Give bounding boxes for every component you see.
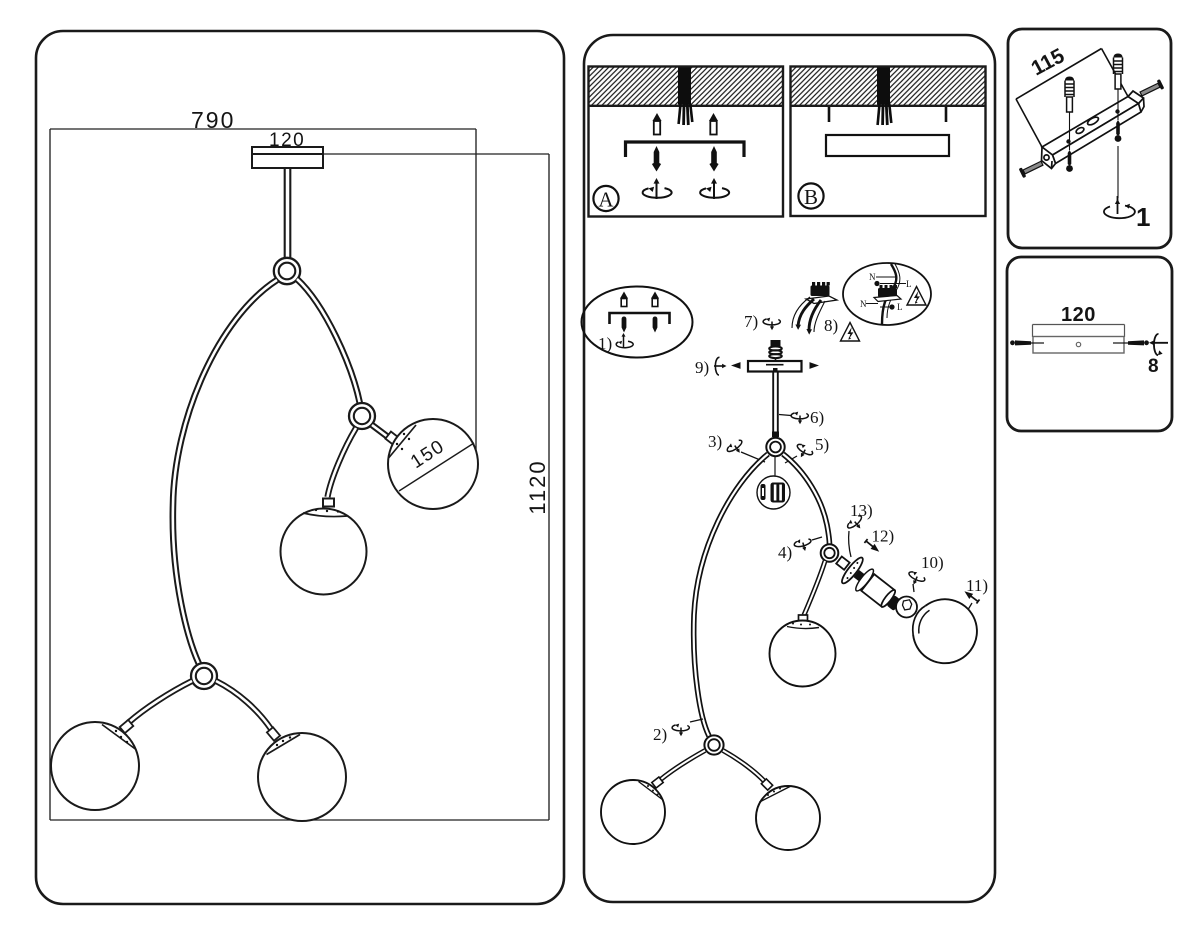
svg-text:5): 5) — [815, 435, 829, 454]
svg-text:120: 120 — [1061, 304, 1096, 326]
svg-text:12): 12) — [872, 527, 895, 546]
svg-text:1120: 1120 — [525, 459, 550, 514]
svg-text:8): 8) — [824, 316, 838, 335]
svg-text:A: A — [598, 188, 614, 212]
svg-text:1: 1 — [1136, 202, 1150, 232]
svg-text:B: B — [804, 185, 818, 209]
svg-text:N: N — [860, 299, 867, 309]
svg-text:2): 2) — [653, 725, 667, 744]
svg-text:1): 1) — [598, 334, 612, 353]
svg-text:9): 9) — [695, 358, 709, 377]
svg-text:4): 4) — [778, 543, 792, 562]
svg-text:L: L — [897, 302, 903, 312]
svg-text:8: 8 — [1148, 356, 1159, 377]
svg-text:N: N — [869, 272, 876, 282]
svg-text:3): 3) — [708, 432, 722, 451]
svg-text:6): 6) — [810, 408, 824, 427]
svg-text:L: L — [906, 279, 912, 289]
svg-text:7): 7) — [744, 312, 758, 331]
svg-text:11): 11) — [966, 576, 988, 595]
svg-text:10): 10) — [921, 553, 944, 572]
svg-text:115: 115 — [1028, 44, 1069, 80]
